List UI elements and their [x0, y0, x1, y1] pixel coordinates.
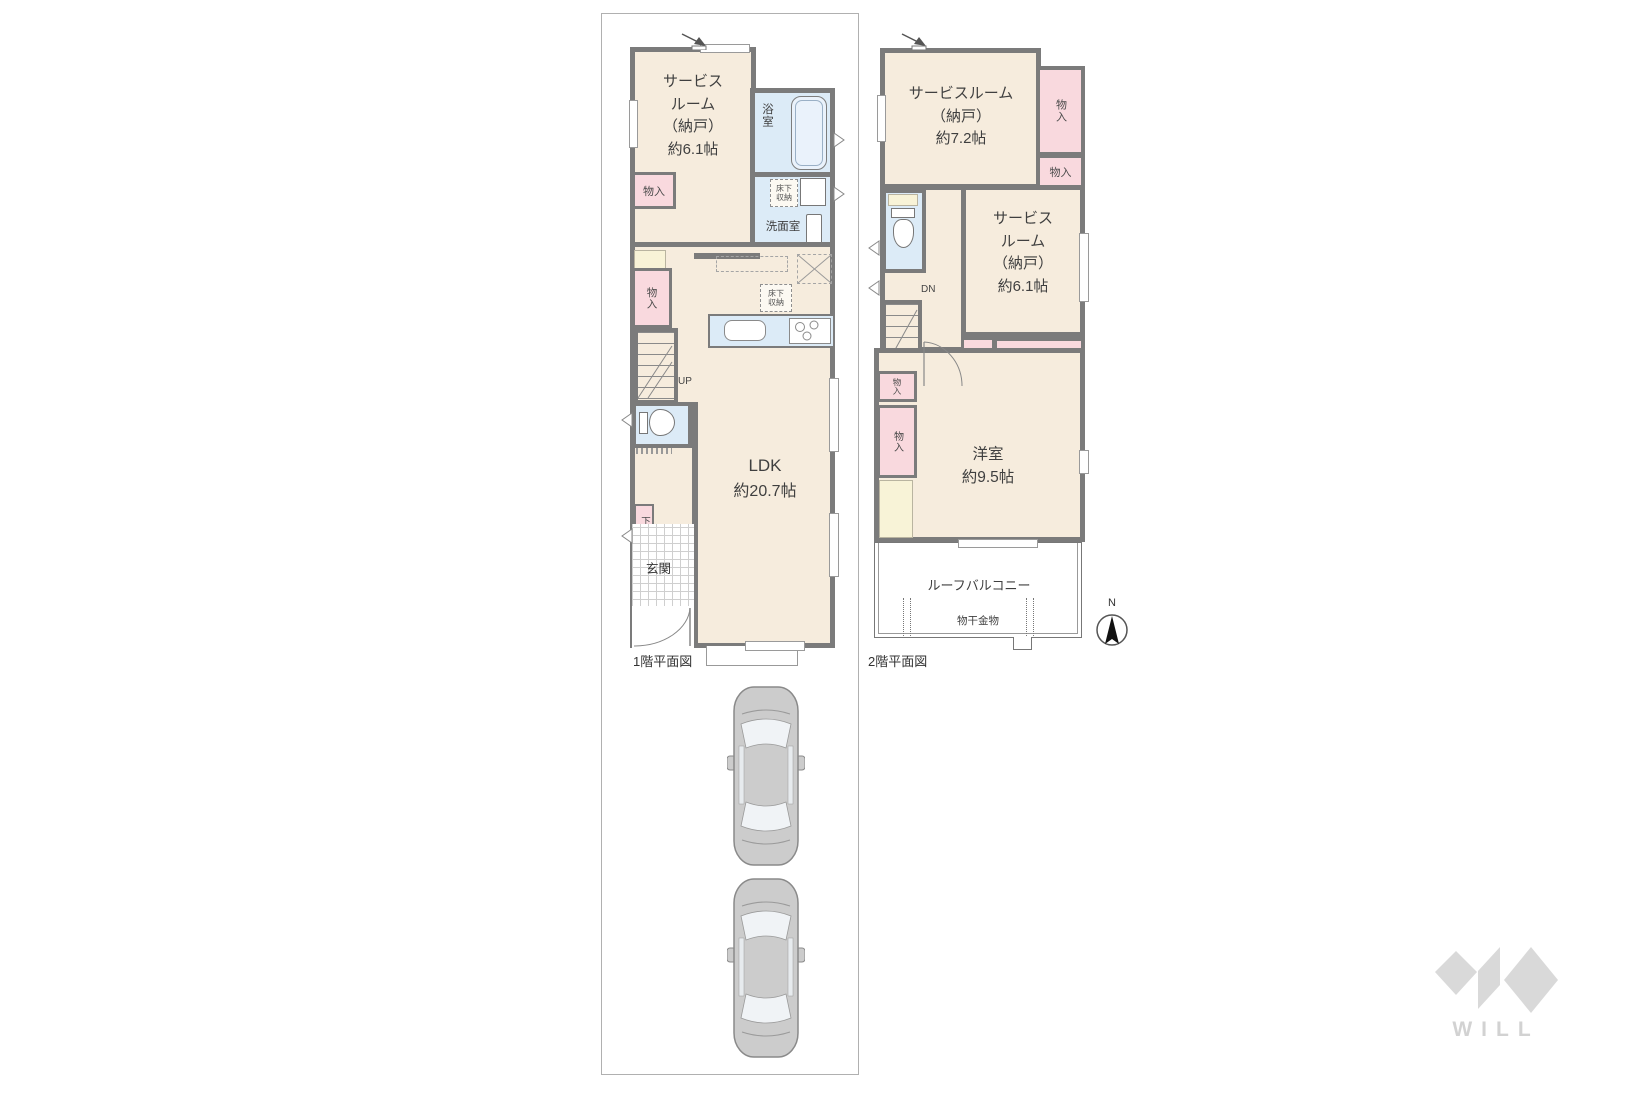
underfloor-storage-box-2: 床下 収納	[760, 284, 792, 312]
entry-door-area	[632, 606, 694, 648]
room-service-2f-b-label: サービス ルーム （納戸） 約6.1帖	[966, 203, 1080, 303]
compass-icon: N	[1090, 594, 1134, 650]
stove-burners	[790, 319, 830, 343]
counter-dashed-outline	[716, 256, 788, 272]
closet-label: 物入	[1053, 99, 1069, 123]
approach-arrow-1f	[676, 28, 712, 50]
room-western-label: 洋室 約9.5帖	[928, 440, 1048, 492]
refrigerator-space	[797, 254, 832, 284]
window-mark	[1079, 450, 1089, 474]
caption-2f: 2階平面図	[868, 651, 927, 670]
car-icon	[727, 876, 805, 1060]
door-mark	[621, 528, 633, 544]
refrigerator-x-mark	[798, 255, 831, 283]
toilet-tank-2f	[891, 208, 915, 218]
window-mark	[877, 95, 886, 142]
car-icon	[727, 684, 805, 868]
closet-2f-left-a: 物入	[877, 371, 917, 402]
window-mark	[1079, 233, 1089, 302]
closet-1f-b: 物入	[632, 268, 672, 328]
stairs-up-label: UP	[678, 376, 692, 387]
entry-door-arc	[632, 606, 694, 648]
bathtub	[791, 96, 827, 170]
door-arc-western	[922, 340, 964, 388]
underfloor-storage-box: 床下 収納	[770, 179, 798, 207]
room-ldk-label: LDK 約20.7帖	[695, 450, 835, 506]
room-washroom-label: 洗面室	[752, 218, 814, 234]
window-mark	[629, 100, 638, 148]
closet-1f-a: 物入	[632, 172, 676, 209]
will-logo-text: WILL	[1452, 1018, 1539, 1041]
balcony-drain-tab	[1013, 637, 1032, 650]
window-mark	[745, 641, 805, 651]
roof-balcony-label: ルーフバルコニー	[904, 575, 1054, 594]
toilet-tank-1f	[639, 412, 648, 434]
door-mark	[868, 240, 880, 256]
vent-mark	[833, 132, 845, 148]
kitchen-sink	[724, 320, 766, 341]
laundry-pole-mark	[1026, 598, 1034, 636]
closet-label: 物入	[891, 378, 903, 395]
closet-label: 物入	[890, 431, 905, 453]
closet-label: 物入	[1050, 164, 1072, 180]
kitchen-stove	[789, 318, 831, 344]
room-service-1f-label: サービス ルーム （納戸） 約6.1帖	[636, 66, 750, 166]
closet-label: 物入	[643, 183, 665, 199]
window-mark	[958, 539, 1038, 548]
window-mark	[829, 513, 839, 577]
stairs-1f	[634, 328, 678, 404]
toilet-shelf	[888, 194, 918, 206]
hatch-strip	[636, 448, 672, 454]
closet-2f-tr1: 物入	[1036, 66, 1085, 156]
caption-1f: 1階平面図	[633, 651, 692, 670]
laundry-hardware-label: 物干金物	[938, 613, 1018, 628]
closet-label: 物入	[645, 287, 660, 310]
vent-mark	[833, 186, 845, 202]
counter-strip-2f	[879, 480, 913, 538]
approach-arrow-2f	[896, 28, 932, 50]
room-service-2f-a-label: サービスルーム （納戸） 約7.2帖	[886, 80, 1036, 154]
door-mark	[868, 280, 880, 296]
stairs-1f-guide	[638, 332, 674, 400]
will-logo: WILL	[1432, 944, 1562, 1042]
floorplan-canvas: サービス ルーム （納戸） 約6.1帖 浴室 床下 収納 洗面室 物入 物入 U…	[0, 0, 1639, 1093]
window-mark	[829, 378, 839, 452]
compass-north-label: N	[1108, 597, 1116, 609]
counter-strip-1f	[634, 250, 666, 270]
door-mark	[621, 412, 633, 428]
entrance-label: 玄関	[646, 558, 671, 577]
bathtub-inner	[795, 100, 823, 166]
closet-2f-left-b: 物入	[877, 405, 917, 478]
washer-space	[800, 178, 826, 206]
stairs-down-label: DN	[921, 284, 935, 295]
room-bath-label: 浴室	[759, 103, 775, 128]
laundry-pole-mark	[903, 598, 911, 636]
